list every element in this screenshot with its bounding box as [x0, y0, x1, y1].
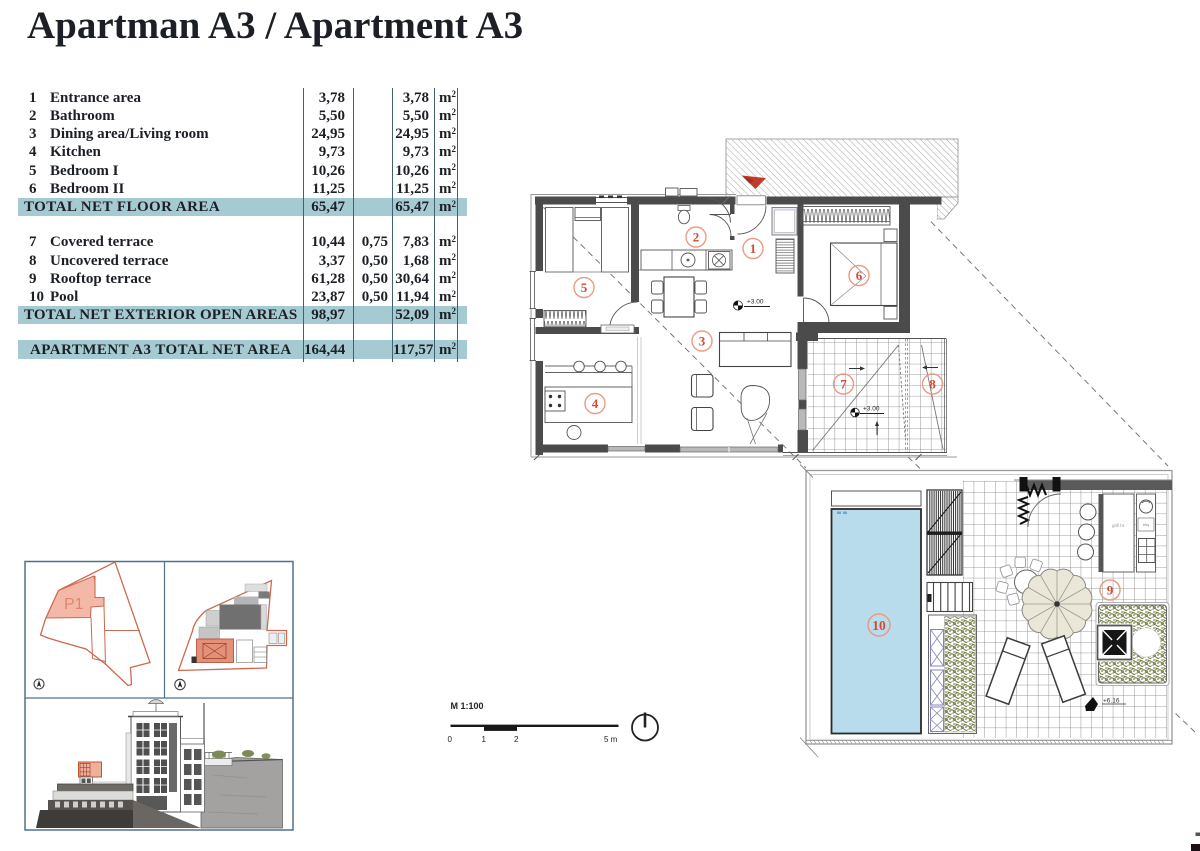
svg-text:4: 4 [592, 396, 599, 411]
svg-text:M 1:100: M 1:100 [451, 701, 484, 711]
svg-text:1: 1 [482, 735, 487, 744]
svg-text:2: 2 [693, 230, 700, 245]
svg-text:+3.00: +3.00 [863, 406, 880, 413]
svg-text:0: 0 [448, 735, 453, 744]
svg-text:3: 3 [699, 334, 706, 349]
svg-text:P1: P1 [64, 596, 84, 613]
svg-text:5: 5 [581, 280, 588, 295]
svg-text:7: 7 [840, 377, 847, 392]
svg-text:10: 10 [872, 618, 886, 633]
svg-text:8: 8 [929, 377, 936, 392]
svg-text:2: 2 [514, 735, 519, 744]
svg-text:5 m: 5 m [604, 735, 618, 744]
svg-text:+6.16: +6.16 [1103, 698, 1120, 705]
svg-text:+3.00: +3.00 [747, 299, 764, 306]
svg-text:grill ht: grill ht [1112, 523, 1125, 528]
svg-text:1: 1 [750, 241, 757, 256]
svg-text:9: 9 [1107, 583, 1114, 598]
svg-text:bbq: bbq [1143, 523, 1149, 527]
svg-text:6: 6 [856, 268, 863, 283]
